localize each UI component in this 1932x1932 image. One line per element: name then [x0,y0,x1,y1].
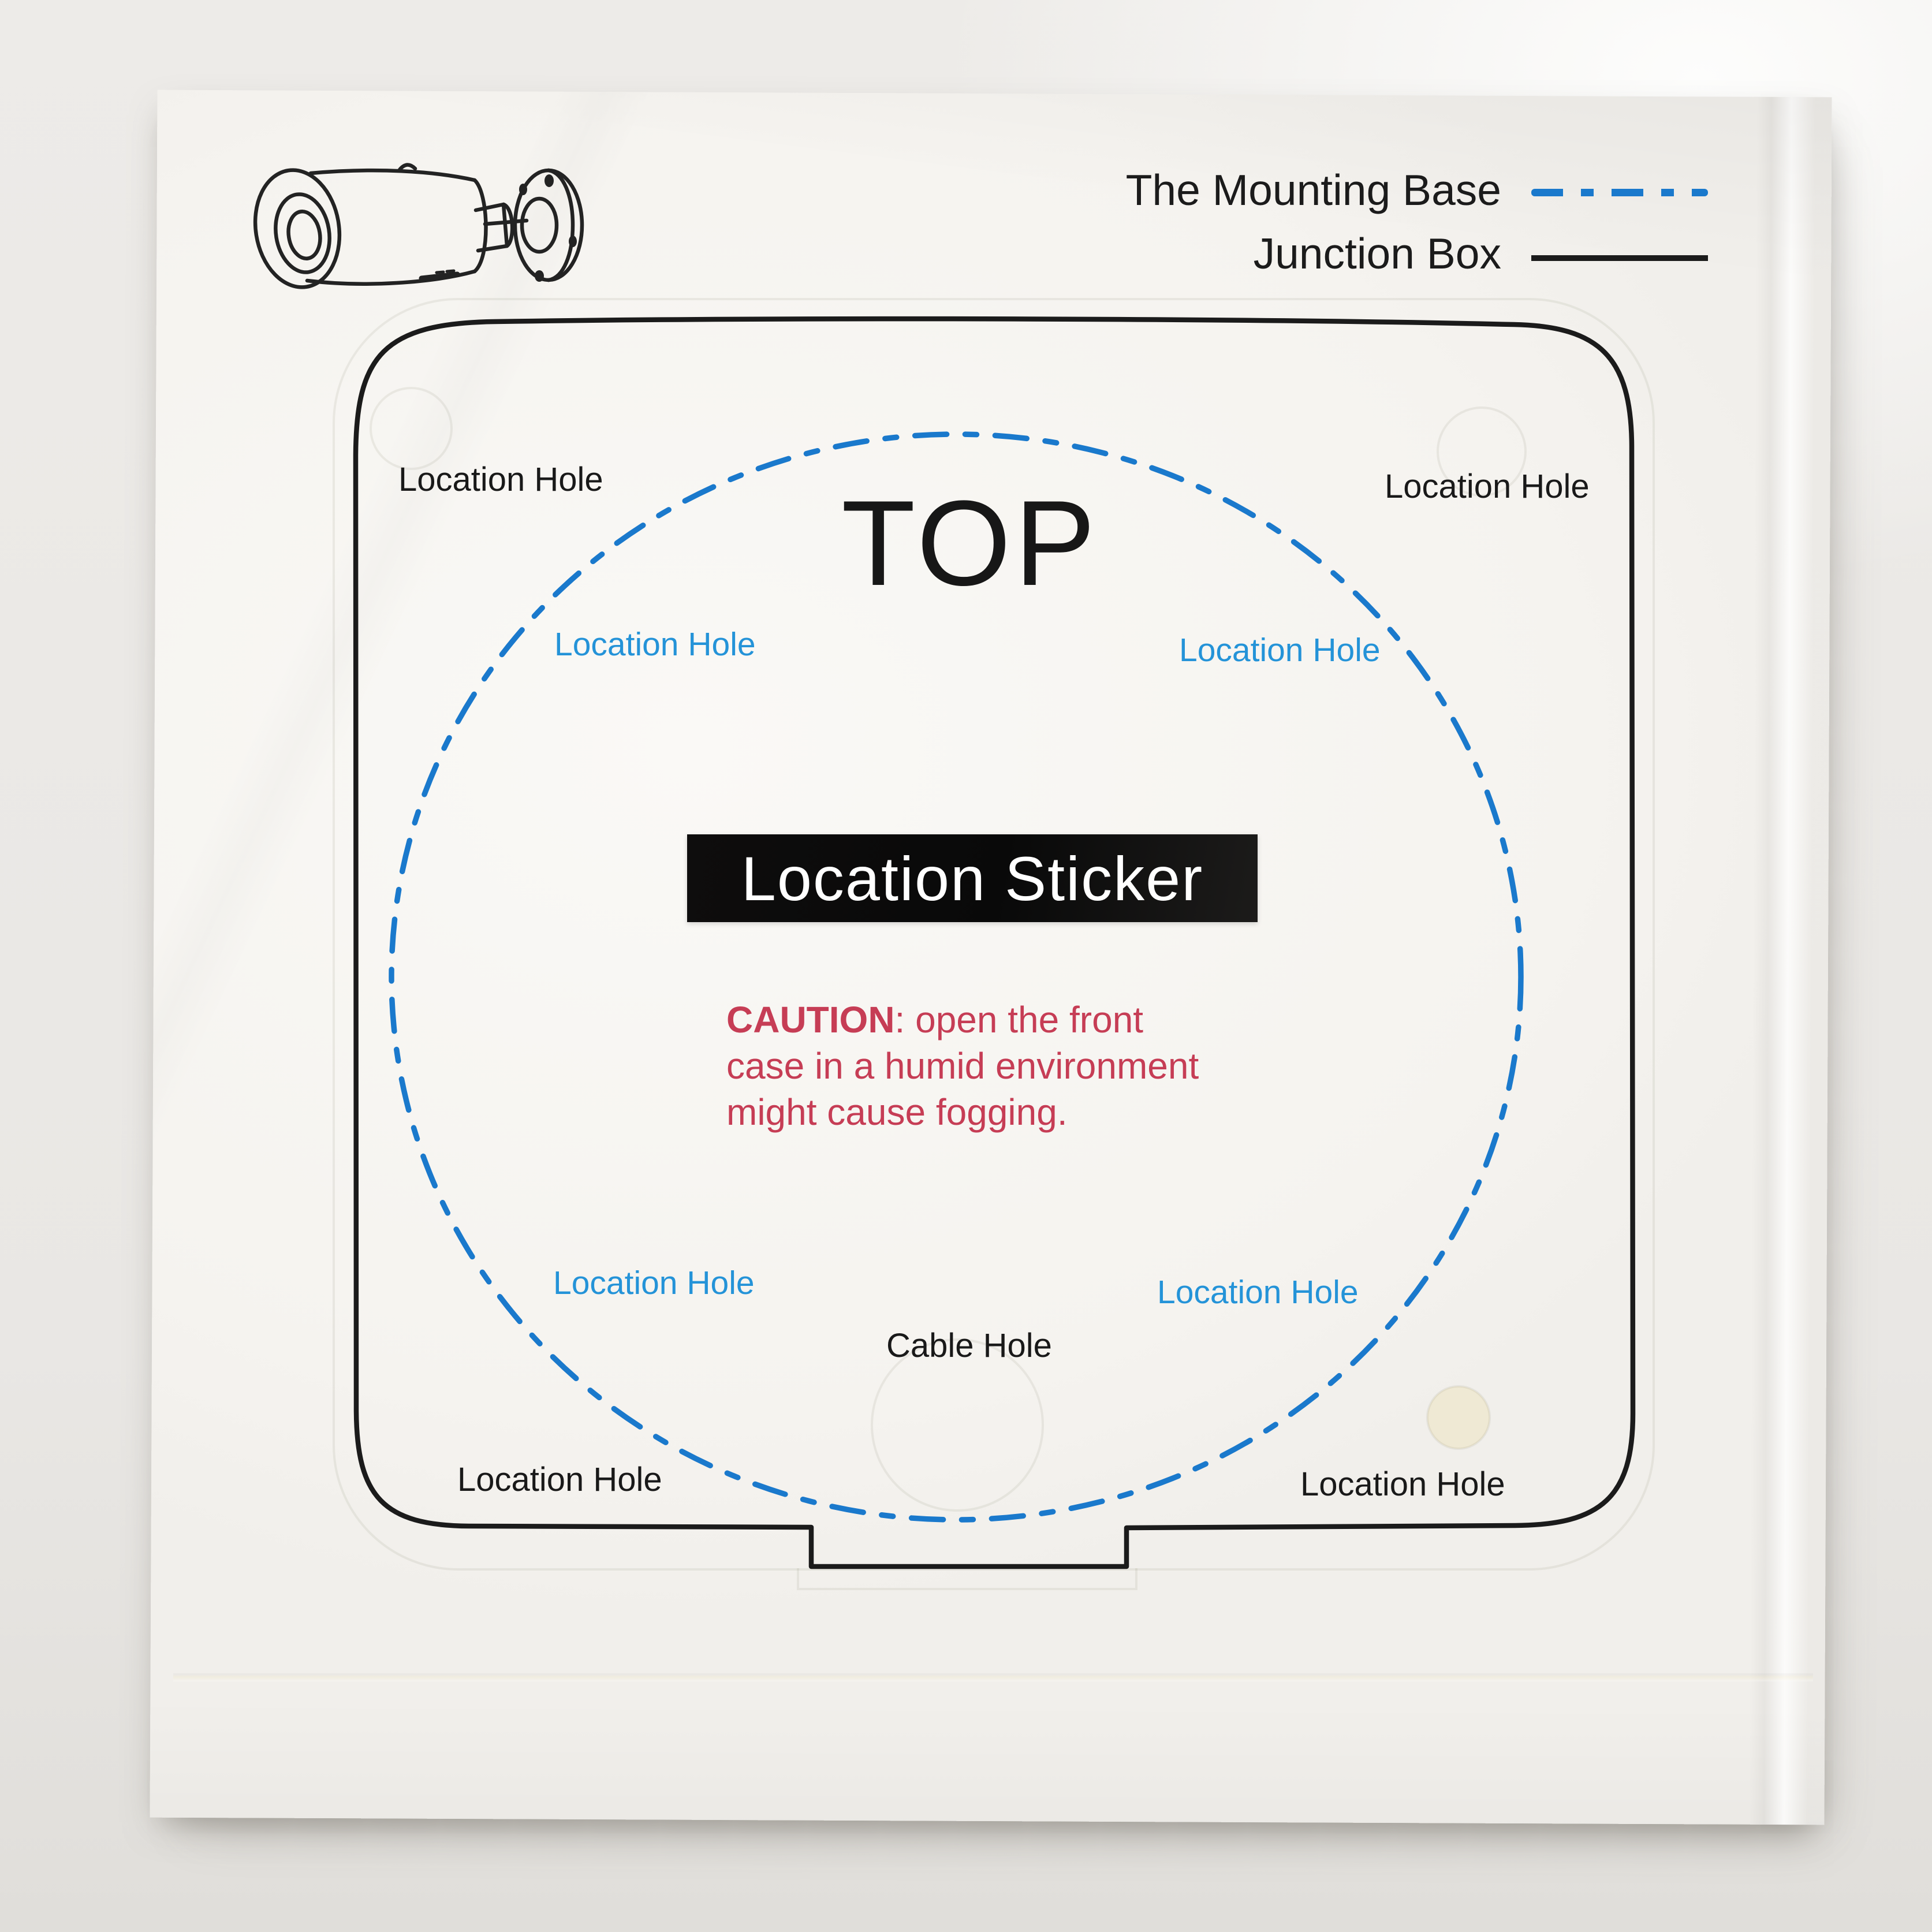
mounting-base-location-hole-upper-left: Location Hole [554,627,756,662]
legend-junction-box-line-sample [1531,255,1708,261]
camera-illustration [247,164,582,293]
caution-line-1-rest: : open the front [895,999,1144,1040]
die-cut-circle-top-left [371,388,452,469]
junction-box-location-hole-top-left: Location Hole [398,462,603,497]
diagram-overlay [0,0,1932,1932]
caution-word: CAUTION [726,999,895,1040]
legend-junction-box-label: Junction Box [982,230,1501,278]
legend-mounting-base-line-sample [1531,189,1708,196]
caution-line-3: might cause fogging. [726,1089,1246,1135]
camera-lens-rim [247,164,348,293]
junction-box-location-hole-top-right: Location Hole [1385,469,1590,504]
junction-box-location-hole-bottom-left: Location Hole [457,1462,662,1497]
location-sticker-badge: Location Sticker [687,834,1258,922]
die-cut-circle-bottom-right [1427,1386,1490,1449]
mounting-base-location-hole-lower-left: Location Hole [553,1266,755,1300]
caution-line-2: case in a humid environment [726,1043,1246,1089]
top-orientation-label: TOP [762,483,1178,604]
mounting-base-location-hole-upper-right: Location Hole [1179,633,1381,667]
caution-line-1: CAUTION: open the front [726,997,1246,1043]
camera-body [311,170,475,180]
mounting-base-location-hole-lower-right: Location Hole [1157,1275,1359,1310]
photo-of-location-sticker: The Mounting Base Junction Box TOP Locat… [0,0,1932,1932]
cable-hole-label: Cable Hole [886,1328,1052,1363]
cable-hole-cutout [872,1340,1043,1510]
location-sticker-badge-text: Location Sticker [741,842,1203,915]
legend-mounting-base-label: The Mounting Base [982,166,1501,214]
camera-bracket [476,204,507,251]
junction-box-location-hole-bottom-right: Location Hole [1300,1467,1505,1502]
caution-note: CAUTION: open the front case in a humid … [726,997,1246,1135]
